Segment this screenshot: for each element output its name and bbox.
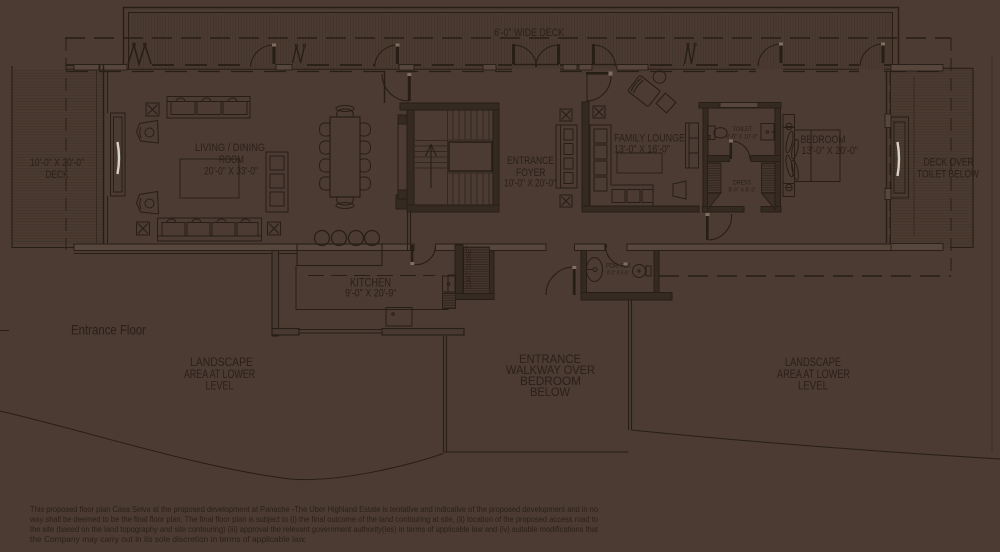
svg-text:10'-0" X 20'-0": 10'-0" X 20'-0" bbox=[504, 178, 556, 190]
svg-text:LEVEL: LEVEL bbox=[206, 381, 234, 393]
svg-text:DRESS: DRESS bbox=[733, 180, 752, 187]
svg-text:This proposed floor plan Casa: This proposed floor plan Casa Selva at t… bbox=[30, 504, 598, 514]
svg-text:LEVEL: LEVEL bbox=[798, 381, 828, 393]
svg-text:LANDSCAPE: LANDSCAPE bbox=[785, 357, 841, 369]
svg-text:20'-0" X 33'-0": 20'-0" X 33'-0" bbox=[204, 166, 258, 178]
svg-text:8'-0" X 5'-6": 8'-0" X 5'-6" bbox=[607, 271, 629, 277]
svg-text:8'-6" X 5'-3": 8'-6" X 5'-3" bbox=[729, 188, 757, 194]
svg-text:Entrance Floor: Entrance Floor bbox=[71, 322, 146, 338]
svg-text:DECK: DECK bbox=[46, 169, 69, 181]
svg-text:ROOM: ROOM bbox=[219, 154, 244, 166]
svg-text:the site (based on the land to: the site (based on the land topography a… bbox=[30, 524, 599, 534]
svg-text:DECK OVER: DECK OVER bbox=[924, 157, 974, 169]
svg-text:13'-0" X 20'-0": 13'-0" X 20'-0" bbox=[802, 145, 859, 157]
svg-text:BELOW: BELOW bbox=[530, 385, 571, 399]
svg-text:the Company may carry out in i: the Company may carry out in its sole di… bbox=[30, 534, 307, 544]
svg-text:LANDSCAPE: LANDSCAPE bbox=[190, 357, 253, 369]
svg-text:COAT CLOSET: COAT CLOSET bbox=[466, 245, 473, 289]
svg-text:9'-0" X 20'-9": 9'-0" X 20'-9" bbox=[345, 288, 397, 300]
svg-text:way shall be deemed to be the: way shall be deemed to be the final floo… bbox=[29, 514, 598, 524]
svg-text:AREA AT LOWER: AREA AT LOWER bbox=[184, 369, 255, 381]
svg-text:6'-0" WIDE DECK: 6'-0" WIDE DECK bbox=[494, 27, 565, 39]
svg-text:10'-0" X 20'-0": 10'-0" X 20'-0" bbox=[30, 157, 84, 169]
svg-text:TOILET BELOW: TOILET BELOW bbox=[917, 169, 979, 181]
svg-text:ENTRANCE: ENTRANCE bbox=[507, 155, 554, 167]
svg-text:TOILET: TOILET bbox=[733, 126, 753, 133]
svg-text:LIVING / DINING: LIVING / DINING bbox=[195, 142, 265, 154]
svg-text:AREA AT LOWER: AREA AT LOWER bbox=[777, 369, 850, 381]
